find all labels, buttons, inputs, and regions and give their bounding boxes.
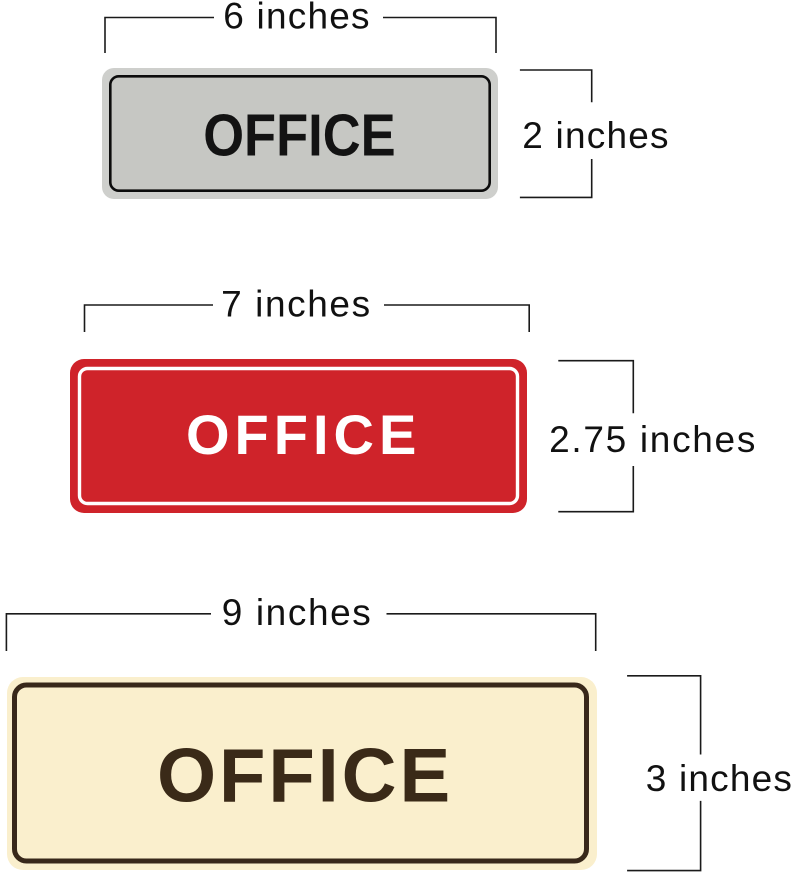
svg-text:OFFICE: OFFICE	[203, 102, 396, 168]
svg-text:2 inches: 2 inches	[522, 115, 669, 156]
svg-text:2.75 inches: 2.75 inches	[549, 419, 757, 460]
svg-text:3 inches: 3 inches	[646, 758, 793, 799]
svg-text:OFFICE: OFFICE	[186, 403, 421, 466]
svg-text:9 inches: 9 inches	[222, 592, 373, 633]
svg-text:7 inches: 7 inches	[221, 283, 372, 324]
svg-text:OFFICE: OFFICE	[157, 733, 453, 818]
svg-text:6 inches: 6 inches	[223, 0, 370, 36]
